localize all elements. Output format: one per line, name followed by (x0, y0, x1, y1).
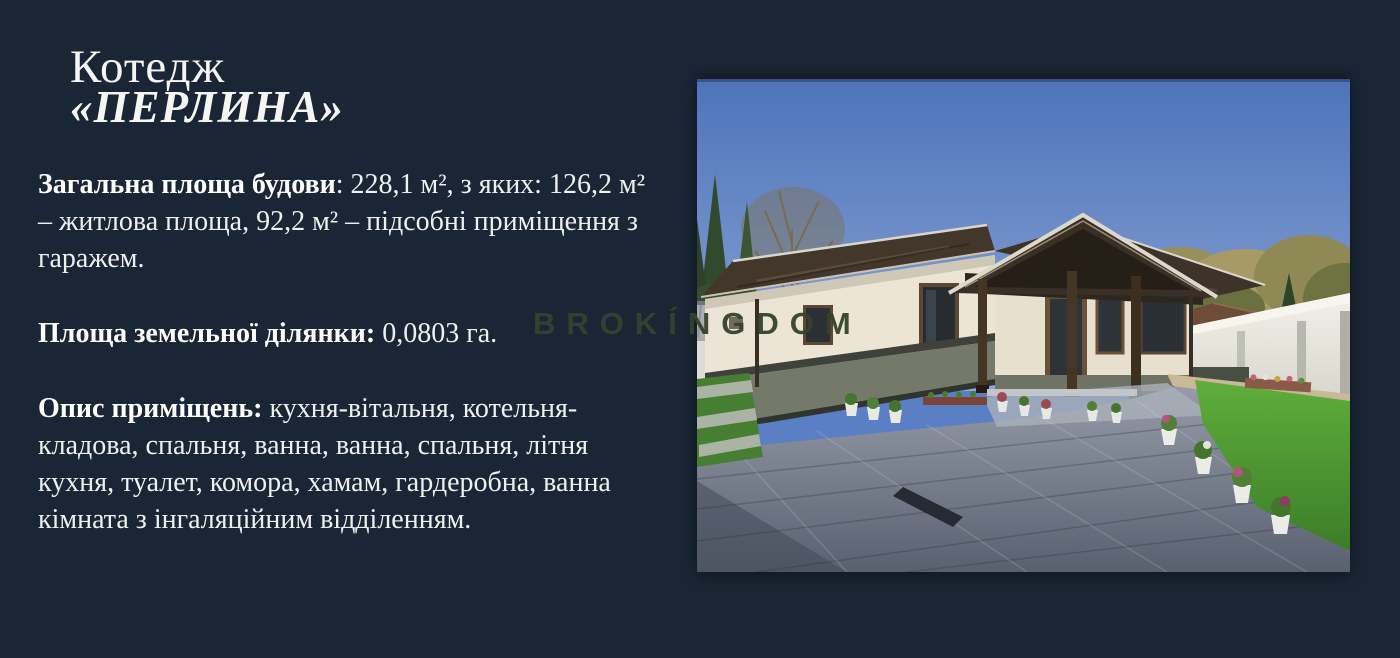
title-line-2: «ПЕРЛИНА» (70, 81, 344, 133)
land-area-value: 0,0803 га. (375, 318, 497, 349)
land-area-label: Площа земельної ділянки: (38, 318, 375, 349)
total-area-label: Загальна площа будови (38, 169, 336, 200)
paragraph-rooms: Опис приміщень: кухня-вітальня, котельня… (38, 390, 666, 538)
property-description: Загальна площа будови: 228,1 м², з яких:… (38, 166, 666, 576)
presentation-slide: Котедж «ПЕРЛИНА» Загальна площа будови: … (0, 0, 1400, 658)
paragraph-total-area: Загальна площа будови: 228,1 м², з яких:… (38, 166, 666, 277)
rooms-label: Опис приміщень: (38, 393, 263, 424)
page-title: Котедж «ПЕРЛИНА» (70, 44, 344, 133)
brokingdom-watermark: BROKÍNGDOM (533, 306, 862, 342)
